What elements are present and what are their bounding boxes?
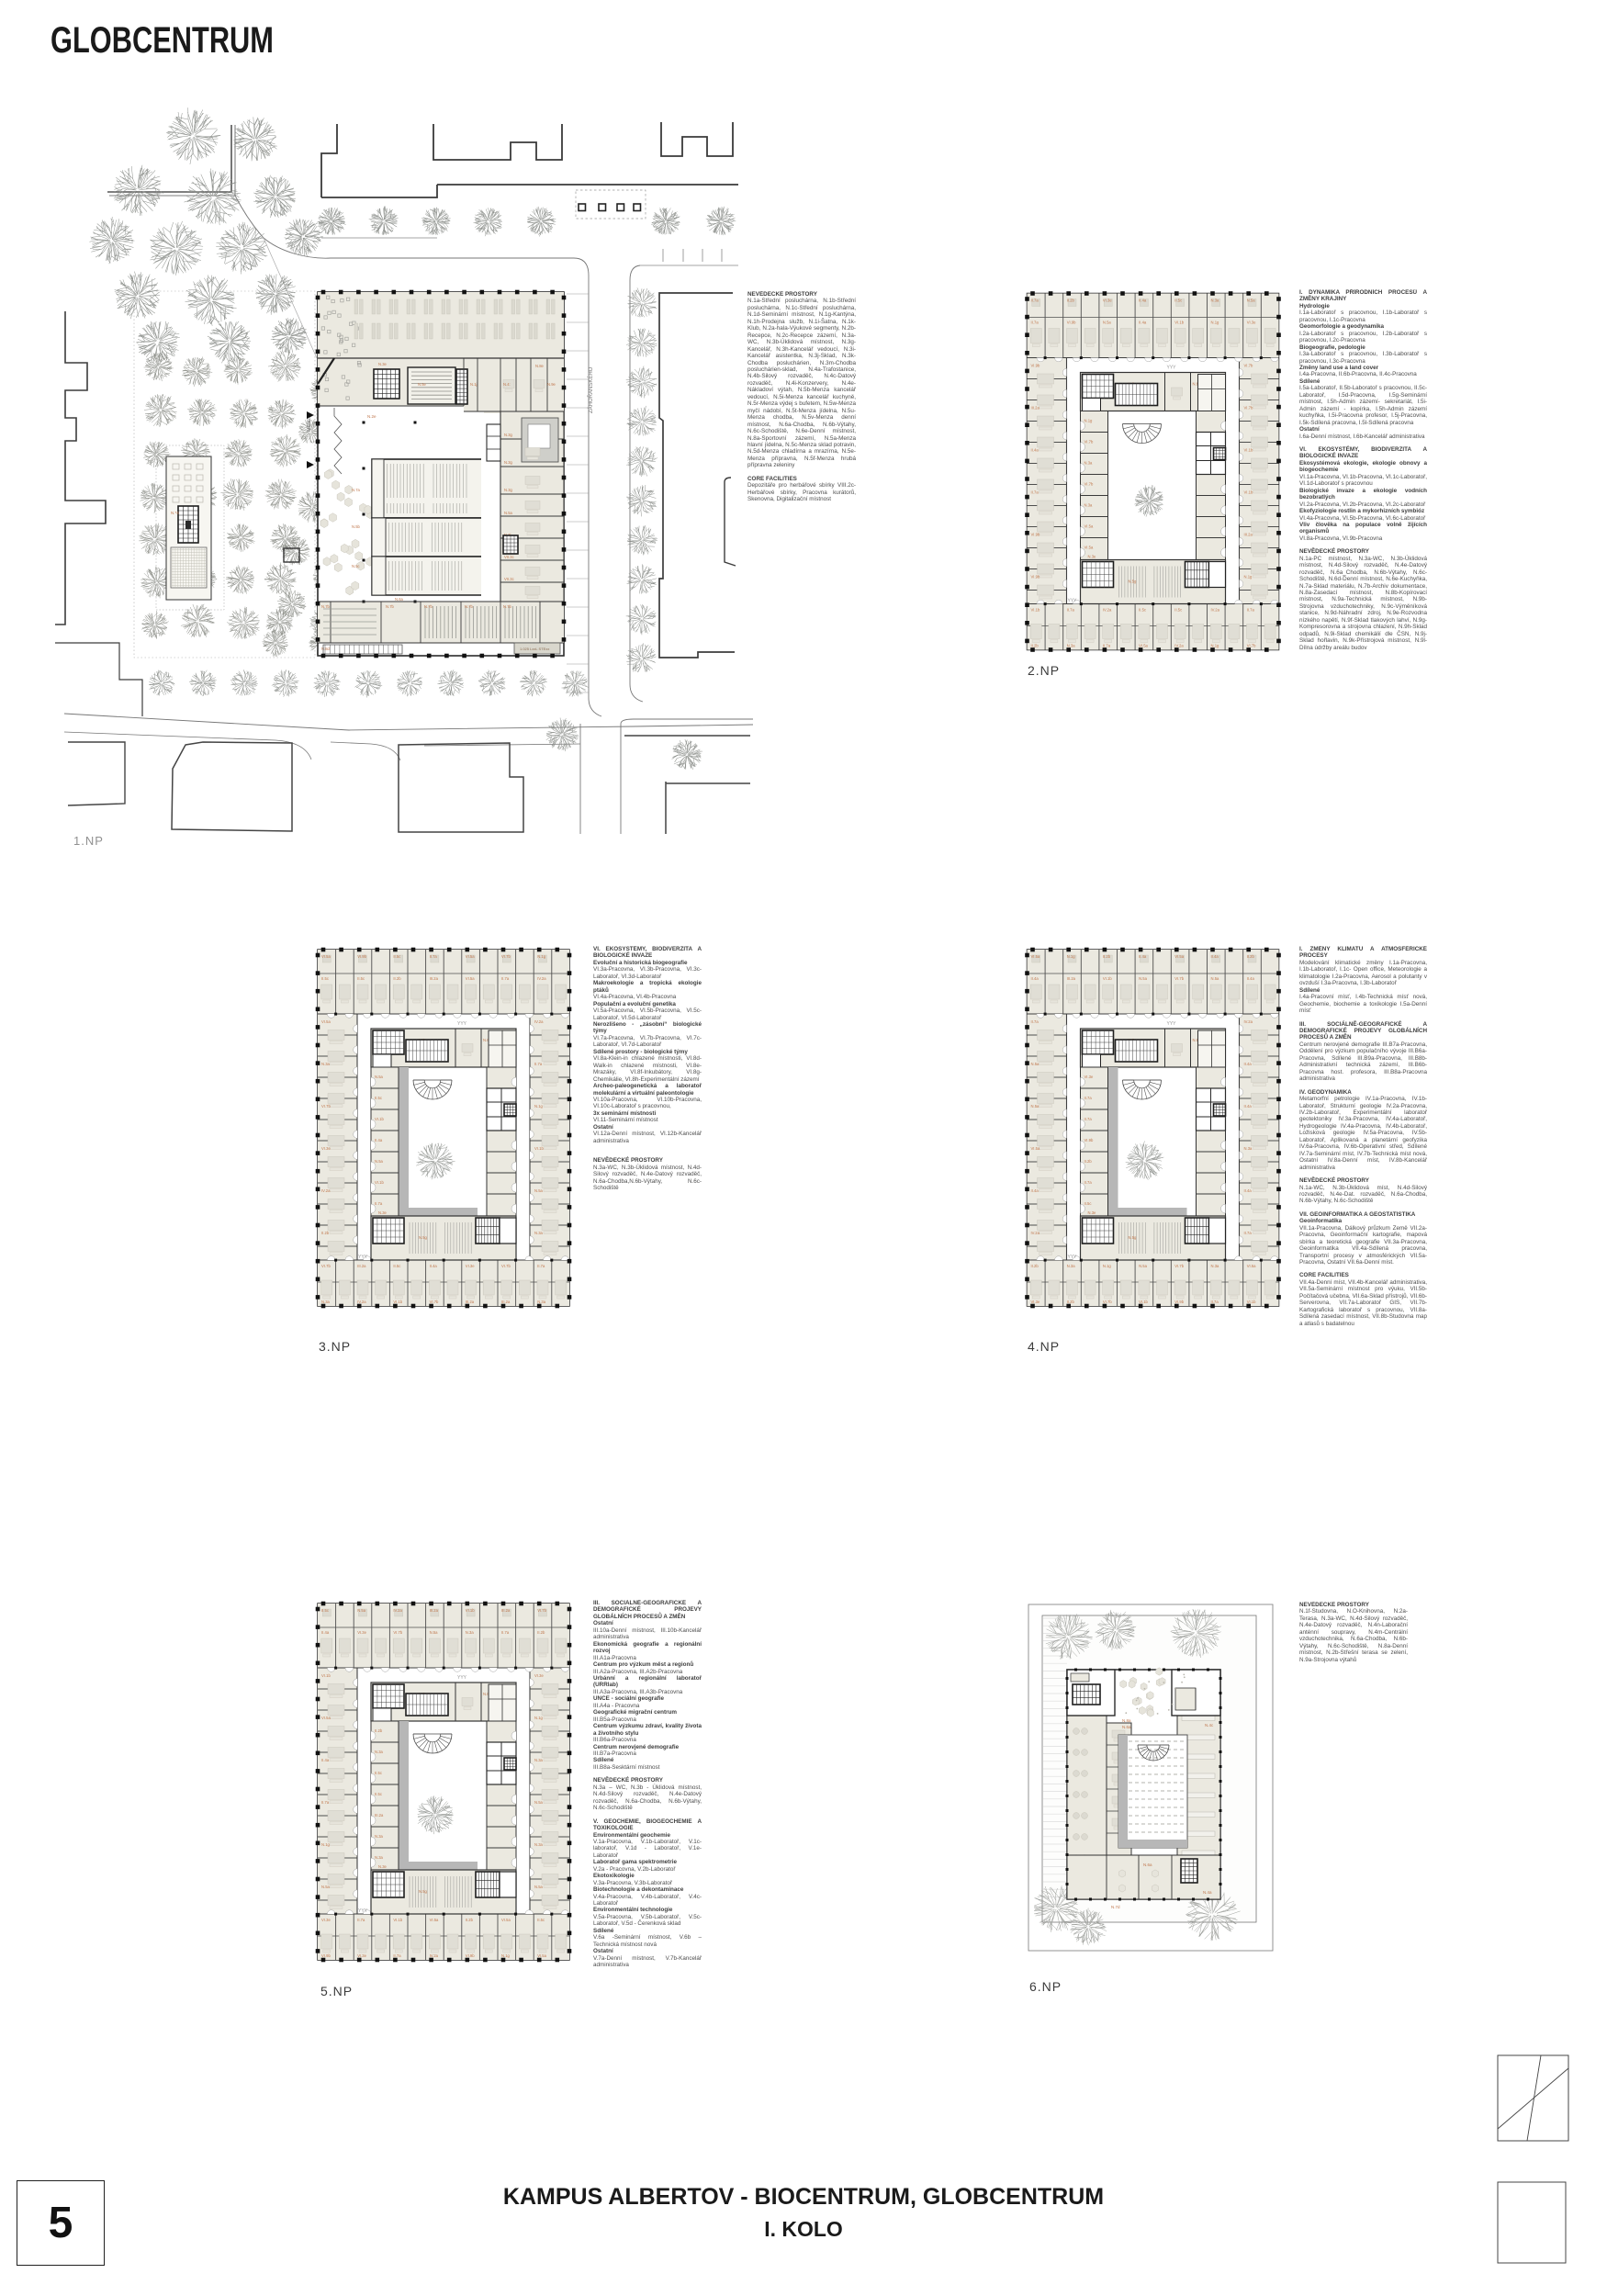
svg-text:N.5a: N.5a — [375, 1075, 384, 1079]
svg-text:N.4a: N.4a — [1203, 1890, 1212, 1895]
svg-text:N.3g: N.3g — [504, 488, 513, 492]
svg-text:N.5e: N.5e — [418, 382, 427, 387]
svg-text:II.7a: II.7a — [1084, 1117, 1093, 1121]
svg-text:VI.7b: VI.7b — [1084, 440, 1094, 445]
svg-text:VI.5a: VI.5a — [466, 954, 475, 959]
svg-text:VI.7b: VI.7b — [537, 1608, 546, 1613]
svg-text:N.3e: N.3e — [1088, 555, 1097, 559]
svg-text:N.1g: N.1g — [1067, 954, 1076, 959]
svg-text:YYY: YYY — [358, 1908, 368, 1914]
svg-text:N.8e: N.8e — [535, 364, 545, 368]
svg-text:N.1g: N.1g — [1103, 1264, 1112, 1268]
svg-text:N.5a: N.5a — [321, 1885, 331, 1889]
svg-text:VI.5a: VI.5a — [321, 1019, 331, 1024]
svg-text:II.2b: II.2b — [1084, 1159, 1093, 1164]
svg-text:ZÁHOŘANSKÉHO: ZÁHOŘANSKÉHO — [587, 366, 594, 413]
svg-text:VI.3e: VI.3e — [466, 1264, 475, 1268]
svg-text:VI.5a: VI.5a — [1139, 644, 1148, 648]
svg-text:II.5c: II.5c — [1174, 608, 1182, 613]
svg-text:II.4a: II.4a — [1139, 954, 1147, 959]
svg-text:IV.2a: IV.2a — [1244, 1019, 1253, 1024]
svg-text:II.7a: II.7a — [1211, 1300, 1219, 1304]
svg-text:N.3a: N.3a — [1067, 644, 1076, 648]
svg-text:VI.7b: VI.7b — [1174, 976, 1184, 981]
svg-text:III.2a: III.2a — [357, 1264, 366, 1268]
svg-text:N.5a: N.5a — [1247, 298, 1256, 303]
svg-text:III.2a: III.2a — [1031, 406, 1040, 411]
svg-text:N.4c: N.4c — [1205, 1723, 1214, 1728]
svg-text:N.3a: N.3a — [1211, 298, 1220, 303]
svg-text:N.8d: N.8d — [321, 647, 331, 651]
svg-text:VI.1b: VI.1b — [375, 1117, 384, 1121]
svg-text:II.2b: II.2b — [393, 976, 401, 981]
svg-text:N.5a: N.5a — [1103, 321, 1112, 325]
svg-text:VI.3e: VI.3e — [321, 1146, 331, 1151]
svg-text:N.7d: N.7d — [1111, 1905, 1120, 1909]
svg-text:N.5b: N.5b — [352, 524, 361, 529]
svg-text:N.1g: N.1g — [1211, 644, 1220, 648]
svg-text:II.5c: II.5c — [393, 1264, 400, 1268]
svg-text:II.4a: II.4a — [1139, 298, 1147, 303]
svg-text:YYY: YYY — [1167, 1021, 1177, 1027]
svg-text:VI.1b: VI.1b — [321, 1673, 331, 1678]
svg-text:VI.7b: VI.7b — [321, 1264, 331, 1268]
svg-text:VII.3c: VII.3c — [504, 577, 514, 581]
svg-text:N.5g: N.5g — [419, 1889, 428, 1894]
svg-text:II.7a: II.7a — [501, 976, 510, 981]
svg-text:N.6a: N.6a — [1143, 1863, 1152, 1867]
svg-text:N.3a: N.3a — [1067, 1264, 1076, 1268]
svg-text:III.2a: III.2a — [1244, 533, 1253, 537]
svg-text:II.7a: II.7a — [1103, 644, 1111, 648]
svg-text:II.5c: II.5c — [321, 976, 329, 981]
svg-text:VI.5a: VI.5a — [1247, 1264, 1256, 1268]
svg-text:N.1g: N.1g — [501, 1953, 511, 1958]
svg-text:II.4a: II.4a — [1031, 448, 1039, 453]
svg-text:VI.7b: VI.7b — [393, 1630, 402, 1635]
svg-text:VI.3e: VI.3e — [1103, 298, 1112, 303]
svg-text:IV.2a: IV.2a — [357, 1300, 366, 1304]
svg-text:N.5a: N.5a — [1139, 1264, 1148, 1268]
svg-text:N.5a: N.5a — [534, 1885, 544, 1889]
svg-text:II.2b: II.2b — [1103, 954, 1111, 959]
svg-text:IV.2a: IV.2a — [1031, 1231, 1040, 1235]
svg-text:II.5c: II.5c — [1174, 298, 1182, 303]
svg-text:N.3e: N.3e — [378, 1210, 388, 1215]
svg-text:VI.5a: VI.5a — [321, 954, 331, 959]
svg-text:1.025 LxxL STExx: 1.025 LxxL STExx — [520, 647, 549, 651]
svg-text:VII.3c: VII.3c — [504, 555, 514, 559]
svg-text:II.7a: II.7a — [1084, 1096, 1093, 1100]
svg-text:II.4a: II.4a — [1139, 321, 1147, 325]
svg-text:IV.2a: IV.2a — [393, 1608, 402, 1613]
svg-text:YYY: YYY — [1068, 599, 1078, 604]
svg-text:VI.9b: VI.9b — [321, 1953, 331, 1958]
svg-text:II.5c: II.5c — [375, 1096, 382, 1100]
svg-text:N.5g: N.5g — [1129, 580, 1138, 584]
svg-text:VI.5a: VI.5a — [1084, 546, 1094, 550]
svg-text:IV.2a: IV.2a — [1174, 644, 1184, 648]
svg-text:II.7a: II.7a — [1031, 321, 1039, 325]
svg-text:IV.2a: IV.2a — [534, 1019, 544, 1024]
svg-text:VI.5a: VI.5a — [1084, 524, 1094, 529]
svg-text:N.5a: N.5a — [1031, 1062, 1040, 1066]
svg-text:III.2a: III.2a — [430, 1608, 439, 1613]
svg-text:N.5a: N.5a — [1139, 976, 1148, 981]
svg-text:VI.7b: VI.7b — [321, 1104, 331, 1109]
svg-text:VI.1b: VI.1b — [1174, 321, 1184, 325]
svg-text:N.1g: N.1g — [534, 1104, 544, 1109]
svg-text:N.3a: N.3a — [1084, 461, 1094, 466]
svg-text:VI.7b: VI.7b — [1103, 1300, 1112, 1304]
svg-text:N.3a: N.3a — [375, 1855, 384, 1860]
svg-text:IV.2a: IV.2a — [537, 976, 546, 981]
svg-text:III.2a: III.2a — [1067, 976, 1076, 981]
svg-text:II.7a: II.7a — [393, 1953, 401, 1958]
svg-text:II.7a: II.7a — [430, 954, 438, 959]
svg-text:N.7b: N.7b — [465, 604, 474, 609]
svg-text:N.*4: N.*4 — [171, 511, 179, 515]
svg-text:II.5c: II.5c — [357, 976, 365, 981]
svg-text:II.7a: II.7a — [1031, 490, 1039, 495]
svg-text:VI.1b: VI.1b — [393, 1918, 402, 1922]
svg-text:II.4a: II.4a — [430, 1264, 438, 1268]
svg-text:III.2a: III.2a — [466, 1300, 475, 1304]
svg-text:VI.9b: VI.9b — [1067, 321, 1076, 325]
svg-text:VI.3e: VI.3e — [534, 1673, 544, 1678]
svg-text:N.8a: N.8a — [1122, 1718, 1131, 1723]
svg-text:N.3g: N.3g — [504, 433, 513, 437]
svg-text:II.5c: II.5c — [393, 954, 400, 959]
svg-text:VI.1b: VI.1b — [1139, 1300, 1148, 1304]
svg-text:II.2b: II.2b — [1067, 298, 1075, 303]
svg-text:VI.1b: VI.1b — [1103, 976, 1112, 981]
svg-text:N.3a: N.3a — [321, 1062, 331, 1066]
svg-text:VI.5a: VI.5a — [1031, 1146, 1040, 1151]
svg-text:VI.5a: VI.5a — [321, 1716, 331, 1720]
svg-text:VI.9b: VI.9b — [1031, 533, 1040, 537]
svg-text:N.5a: N.5a — [1031, 1104, 1040, 1109]
svg-text:N.5a: N.5a — [534, 1188, 544, 1193]
svg-text:N.3a: N.3a — [1244, 1146, 1253, 1151]
svg-text:VI.1b: VI.1b — [1031, 608, 1040, 613]
svg-text:II.2b: II.2b — [466, 1918, 474, 1922]
svg-text:N.1g: N.1g — [1211, 321, 1220, 325]
svg-text:II.4a: II.4a — [321, 1630, 330, 1635]
svg-text:VI.1b: VI.1b — [1244, 490, 1253, 495]
svg-text:N.3a: N.3a — [534, 1231, 544, 1235]
svg-text:II.7a: II.7a — [1031, 298, 1039, 303]
svg-text:VI.3e: VI.3e — [357, 1953, 366, 1958]
svg-text:N.1j: N.1j — [470, 382, 478, 387]
svg-text:N.5a: N.5a — [357, 1608, 366, 1613]
svg-text:II.7a: II.7a — [537, 1264, 545, 1268]
svg-text:N.6a: N.6a — [395, 597, 404, 602]
svg-text:VI.3e: VI.3e — [321, 1918, 331, 1922]
svg-text:II.2b: II.2b — [537, 1630, 545, 1635]
svg-text:II.2b: II.2b — [1031, 644, 1039, 648]
svg-text:II.4a: II.4a — [1211, 954, 1219, 959]
svg-text:II.5c: II.5c — [375, 1771, 382, 1775]
svg-text:III.2a: III.2a — [375, 1813, 384, 1818]
svg-text:II.4a: II.4a — [1031, 976, 1039, 981]
svg-text:VI.5a: VI.5a — [430, 1918, 439, 1922]
svg-text:N.7b: N.7b — [503, 604, 512, 609]
svg-text:II.7a: II.7a — [1244, 1231, 1253, 1235]
svg-text:II.5c: II.5c — [321, 1608, 329, 1613]
svg-text:III.2a: III.2a — [501, 1608, 511, 1613]
svg-text:II.2b: II.2b — [375, 1728, 383, 1733]
svg-text:II.4a: II.4a — [1244, 1104, 1253, 1109]
svg-text:N.3a: N.3a — [534, 1758, 544, 1762]
svg-text:VI.7b: VI.7b — [1244, 406, 1253, 411]
svg-text:N.3a: N.3a — [534, 1842, 544, 1847]
svg-text:N.3a: N.3a — [375, 1750, 384, 1754]
svg-text:VI.3e: VI.3e — [1031, 1300, 1040, 1304]
svg-text:II.4a: II.4a — [1247, 976, 1255, 981]
svg-text:VI.5a: VI.5a — [1031, 954, 1040, 959]
svg-text:IV.2a: IV.2a — [430, 1953, 439, 1958]
svg-text:N.5g: N.5g — [1129, 1235, 1138, 1240]
svg-text:N.9e: N.9e — [547, 382, 556, 387]
svg-text:VI.9b: VI.9b — [1174, 1300, 1184, 1304]
svg-text:II.7a: II.7a — [501, 1630, 510, 1635]
svg-text:VI.7b: VI.7b — [501, 954, 511, 959]
svg-text:VI.5a: VI.5a — [1174, 954, 1184, 959]
svg-text:N.1g: N.1g — [1244, 575, 1253, 580]
svg-text:N.2e: N.2e — [367, 414, 376, 419]
svg-text:II.5c: II.5c — [537, 1918, 545, 1922]
svg-text:N.1g: N.1g — [1084, 419, 1094, 423]
svg-text:N.3e: N.3e — [1088, 1210, 1097, 1215]
svg-text:IV.2a: IV.2a — [1103, 608, 1112, 613]
svg-text:N.3a: N.3a — [466, 1630, 475, 1635]
svg-text:II.2b: II.2b — [321, 1231, 330, 1235]
svg-text:N.5a: N.5a — [1211, 976, 1220, 981]
svg-text:N.6a: N.6a — [1122, 1725, 1131, 1729]
svg-text:VI.1b: VI.1b — [375, 1180, 384, 1185]
svg-text:VI.7b: VI.7b — [1244, 364, 1253, 368]
svg-text:VI.9b: VI.9b — [357, 954, 366, 959]
svg-text:II.2b: II.2b — [1031, 1264, 1039, 1268]
svg-text:N.5a: N.5a — [504, 511, 513, 515]
svg-text:II.7a: II.7a — [1247, 608, 1255, 613]
svg-text:II.4a: II.4a — [1031, 1188, 1039, 1193]
svg-text:N.5c: N.5c — [352, 564, 360, 568]
svg-text:VI.9b: VI.9b — [1031, 575, 1040, 580]
svg-text:II.2b: II.2b — [1247, 954, 1255, 959]
svg-text:III.2a: III.2a — [430, 976, 439, 981]
svg-text:N.5g: N.5g — [419, 1235, 428, 1240]
svg-text:VI.7b: VI.7b — [501, 1264, 511, 1268]
svg-text:II.4a: II.4a — [375, 1138, 383, 1142]
svg-text:YYY: YYY — [457, 1021, 467, 1027]
svg-text:N.3e: N.3e — [378, 1864, 388, 1869]
svg-text:N.3a: N.3a — [537, 1300, 546, 1304]
svg-text:VI.9b: VI.9b — [1031, 364, 1040, 368]
svg-text:N.5a: N.5a — [375, 1159, 384, 1164]
svg-text:VI.3e: VI.3e — [357, 1630, 366, 1635]
svg-text:II.5c: II.5c — [1139, 608, 1146, 613]
svg-text:II.7a: II.7a — [1067, 608, 1075, 613]
svg-text:II.7a: II.7a — [357, 1918, 365, 1922]
svg-text:YYY: YYY — [1068, 1255, 1078, 1260]
svg-text:II.4a: II.4a — [321, 1758, 330, 1762]
svg-text:IV.2a: IV.2a — [1211, 608, 1220, 613]
svg-text:II.7a: II.7a — [321, 1800, 330, 1805]
svg-text:VI.5a: VI.5a — [466, 976, 475, 981]
svg-text:II.7a: II.7a — [1031, 1019, 1039, 1024]
svg-text:VI.1b: VI.1b — [393, 1300, 402, 1304]
svg-text:N.3g: N.3g — [504, 460, 513, 465]
svg-text:N.3a: N.3a — [321, 1300, 331, 1304]
svg-text:YYY: YYY — [457, 1675, 467, 1681]
svg-text:VI.7b: VI.7b — [1247, 644, 1256, 648]
svg-text:VI.9b: VI.9b — [1084, 1138, 1094, 1142]
svg-text:VI.7b: VI.7b — [1174, 1264, 1184, 1268]
svg-text:VI.1b: VI.1b — [534, 1146, 544, 1151]
svg-text:N.1g: N.1g — [321, 1842, 331, 1847]
svg-text:VI.5a: VI.5a — [501, 1918, 511, 1922]
svg-text:VI.1b: VI.1b — [1247, 1300, 1256, 1304]
svg-text:N.3e: N.3e — [378, 362, 388, 366]
svg-text:II.7a: II.7a — [534, 1062, 543, 1066]
svg-text:II.2b: II.2b — [1067, 1300, 1075, 1304]
svg-text:N.5a: N.5a — [534, 1800, 544, 1805]
svg-text:YYY: YYY — [1167, 366, 1177, 371]
svg-text:II.4a: II.4a — [1244, 1062, 1253, 1066]
svg-text:II.4a: II.4a — [1244, 1188, 1253, 1193]
svg-text:VI.7b: VI.7b — [1084, 482, 1094, 487]
svg-text:N.3a: N.3a — [1211, 1264, 1220, 1268]
svg-text:II.7a: II.7a — [1084, 1180, 1093, 1185]
svg-text:VI.1b: VI.1b — [1244, 448, 1253, 453]
svg-text:N.3a: N.3a — [1084, 503, 1094, 508]
svg-text:YYY: YYY — [358, 1255, 368, 1260]
svg-text:N.1g: N.1g — [537, 954, 546, 959]
svg-text:VI.5a: VI.5a — [537, 1953, 546, 1958]
svg-text:N.7b: N.7b — [386, 604, 395, 609]
svg-text:VI.9b: VI.9b — [466, 1953, 475, 1958]
svg-text:N.5a: N.5a — [430, 1630, 439, 1635]
svg-text:VI.1b: VI.1b — [466, 1608, 475, 1613]
svg-text:VI.3e: VI.3e — [1084, 1075, 1094, 1079]
svg-text:N.3a: N.3a — [375, 1834, 384, 1839]
svg-text:VI.3e: VI.3e — [1247, 321, 1256, 325]
svg-text:II.5c: II.5c — [1084, 1201, 1092, 1206]
svg-text:III.2a: III.2a — [501, 1300, 511, 1304]
svg-text:VI.7b: VI.7b — [430, 1300, 439, 1304]
svg-text:N.7b: N.7b — [424, 604, 433, 609]
svg-text:II.5c: II.5c — [375, 1792, 382, 1796]
svg-text:N.4:: N.4: — [503, 382, 511, 387]
svg-text:N.1g: N.1g — [534, 1716, 544, 1720]
svg-text:IV.2a: IV.2a — [321, 1188, 331, 1193]
svg-text:N.7b: N.7b — [321, 604, 331, 609]
svg-text:II.7a: II.7a — [375, 1201, 383, 1206]
svg-text:N.7a: N.7a — [352, 488, 361, 492]
